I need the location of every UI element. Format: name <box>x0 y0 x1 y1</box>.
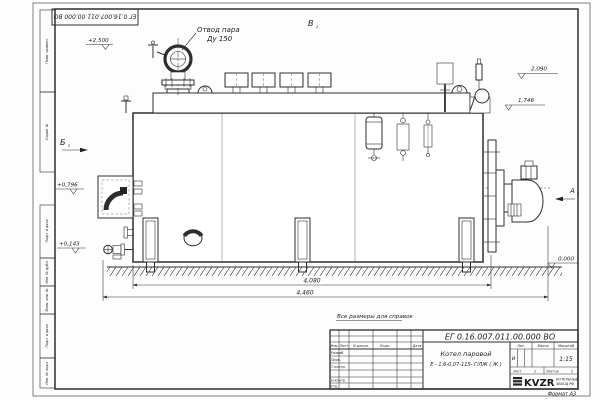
steam-outlet-label: Отвод пара Ду 150 <box>182 26 240 50</box>
col-list: Лист <box>339 344 350 348</box>
elevation-2090-value: 2,090 <box>531 67 547 73</box>
steam-drum <box>153 93 490 113</box>
row-nkontr: Н.контр. <box>331 379 346 383</box>
side-label-inv-dubl: Инв. № дубл. <box>45 260 49 283</box>
kvzr-logo-sub1: КОТЕЛЬНЫЙ <box>556 377 579 382</box>
kvzr-logo-sub2: ЗАВОД РФ <box>556 382 574 386</box>
side-label-podp-data-1: Подп. и дата <box>45 219 49 242</box>
row-tkontr: Т.контр. <box>331 365 346 369</box>
lit-value: И <box>512 356 516 362</box>
manhole <box>184 230 202 246</box>
elevation-0000-value: 0,000 <box>558 257 574 263</box>
row-prov: Пров. <box>331 358 341 362</box>
sheets-label: Листов <box>545 370 559 374</box>
view-a-letter: А <box>569 187 575 195</box>
col-doc: N докум. <box>353 344 369 348</box>
scale-header: Масштаб <box>558 344 574 348</box>
left-top-stub-pipe <box>121 96 131 113</box>
lit-header: Лит. <box>516 344 525 348</box>
product-name-line1: Котел паровой <box>441 350 492 358</box>
lifting-lug-right <box>452 86 467 93</box>
elevation-2090: 2,090 <box>518 67 558 79</box>
top-hatches <box>225 73 331 93</box>
drawing-sheet: Перв. примен. Справ. № Подп. и дата Инв.… <box>0 0 600 400</box>
elevation-0143: +0,143 <box>57 242 86 254</box>
safety-valve <box>476 59 482 89</box>
side-label-podp-data-2: Подп. и дата <box>45 324 49 347</box>
steam-outlet-label-line1: Отвод пара <box>197 26 240 34</box>
elevation-0143-value: +0,143 <box>59 242 80 248</box>
view-a-sheet-ref: 2 <box>577 192 579 196</box>
side-column: Перв. примен. Справ. № Подп. и дата Инв.… <box>40 10 55 388</box>
row-utv: Утв. <box>331 385 338 389</box>
view-b-letter: Б <box>60 138 66 147</box>
titleblock-doc-number: ЕГ 0.16.007.011.00.000 ВО <box>445 333 555 342</box>
format-label: Формат А3 <box>548 392 576 398</box>
col-data: Дата <box>412 344 422 348</box>
economizer-box <box>98 176 133 218</box>
top-inverted-stamp: ЕГ 0.16.007.011.00.000 ВО <box>52 9 138 25</box>
scale-value: 1:15 <box>559 356 573 363</box>
massa-header: Масса <box>538 344 549 348</box>
elevation-2500-value: +2,500 <box>88 38 109 44</box>
view-b-sheet-ref: 2 <box>68 144 70 148</box>
steam-outlet-valve <box>148 38 194 96</box>
title-block: ЕГ 0.16.007.011.00.000 ВО Изм. Лист N до… <box>330 330 579 389</box>
elevation-0796-value: +0,796 <box>57 183 78 189</box>
view-v-sheet-ref: 2 <box>316 25 318 29</box>
reference-note-text: Все размеры для справок <box>337 314 414 320</box>
view-marker-a: А 2 <box>555 187 579 201</box>
view-marker-b: Б 2 <box>60 138 88 152</box>
ground-hatching <box>107 267 562 276</box>
elevation-1746: 1,746 <box>505 98 545 110</box>
kvzr-logo: KVZR КОТЕЛЬНЫЙ ЗАВОД РФ <box>513 377 579 390</box>
elevation-2500: +2,500 <box>86 38 113 50</box>
dim-4460-value: 4,460 <box>296 290 313 297</box>
sheets-total: 2 <box>571 370 573 374</box>
kvzr-logo-text: KVZR <box>524 378 555 389</box>
col-izm: Изм. <box>331 344 339 348</box>
side-label-sprav-no: Справ. № <box>45 123 49 140</box>
product-name-line2: Е - 1,6-0,07-115- Г/ЛЖ ( Ж ) <box>430 362 501 368</box>
boiler-general-view-drawing: Перв. примен. Справ. № Подп. и дата Инв.… <box>0 0 600 400</box>
kvzr-logo-icon <box>513 377 522 386</box>
lifting-lug-left <box>198 86 212 93</box>
stamp-doc-number: ЕГ 0.16.007.011.00.000 ВО <box>53 13 136 20</box>
elevation-1746-value: 1,746 <box>518 98 534 104</box>
view-v-letter: В <box>308 19 314 28</box>
side-label-perv-primen: Перв. примен. <box>45 38 49 63</box>
row-razrab: Разраб. <box>331 351 344 355</box>
dim-4080-value: 4,080 <box>303 278 320 285</box>
col-podp: Подп. <box>380 344 390 348</box>
elevation-0000: 0,000 <box>548 257 578 269</box>
side-label-vzam-inv: Взам. инв. № <box>45 288 49 311</box>
sheet-label: Лист <box>512 370 523 374</box>
sheet-number: 1 <box>534 370 536 374</box>
side-label-inv-podl: Инв. № подл. <box>45 361 49 384</box>
view-marker-v: В 2 <box>308 19 318 29</box>
burner-assembly <box>484 140 543 252</box>
steam-outlet-label-line2: Ду 150 <box>206 35 233 43</box>
elevation-0796: +0,796 <box>55 183 84 195</box>
bottom-drain-assembly <box>104 244 133 259</box>
reference-note: Все размеры для справок <box>336 314 414 321</box>
